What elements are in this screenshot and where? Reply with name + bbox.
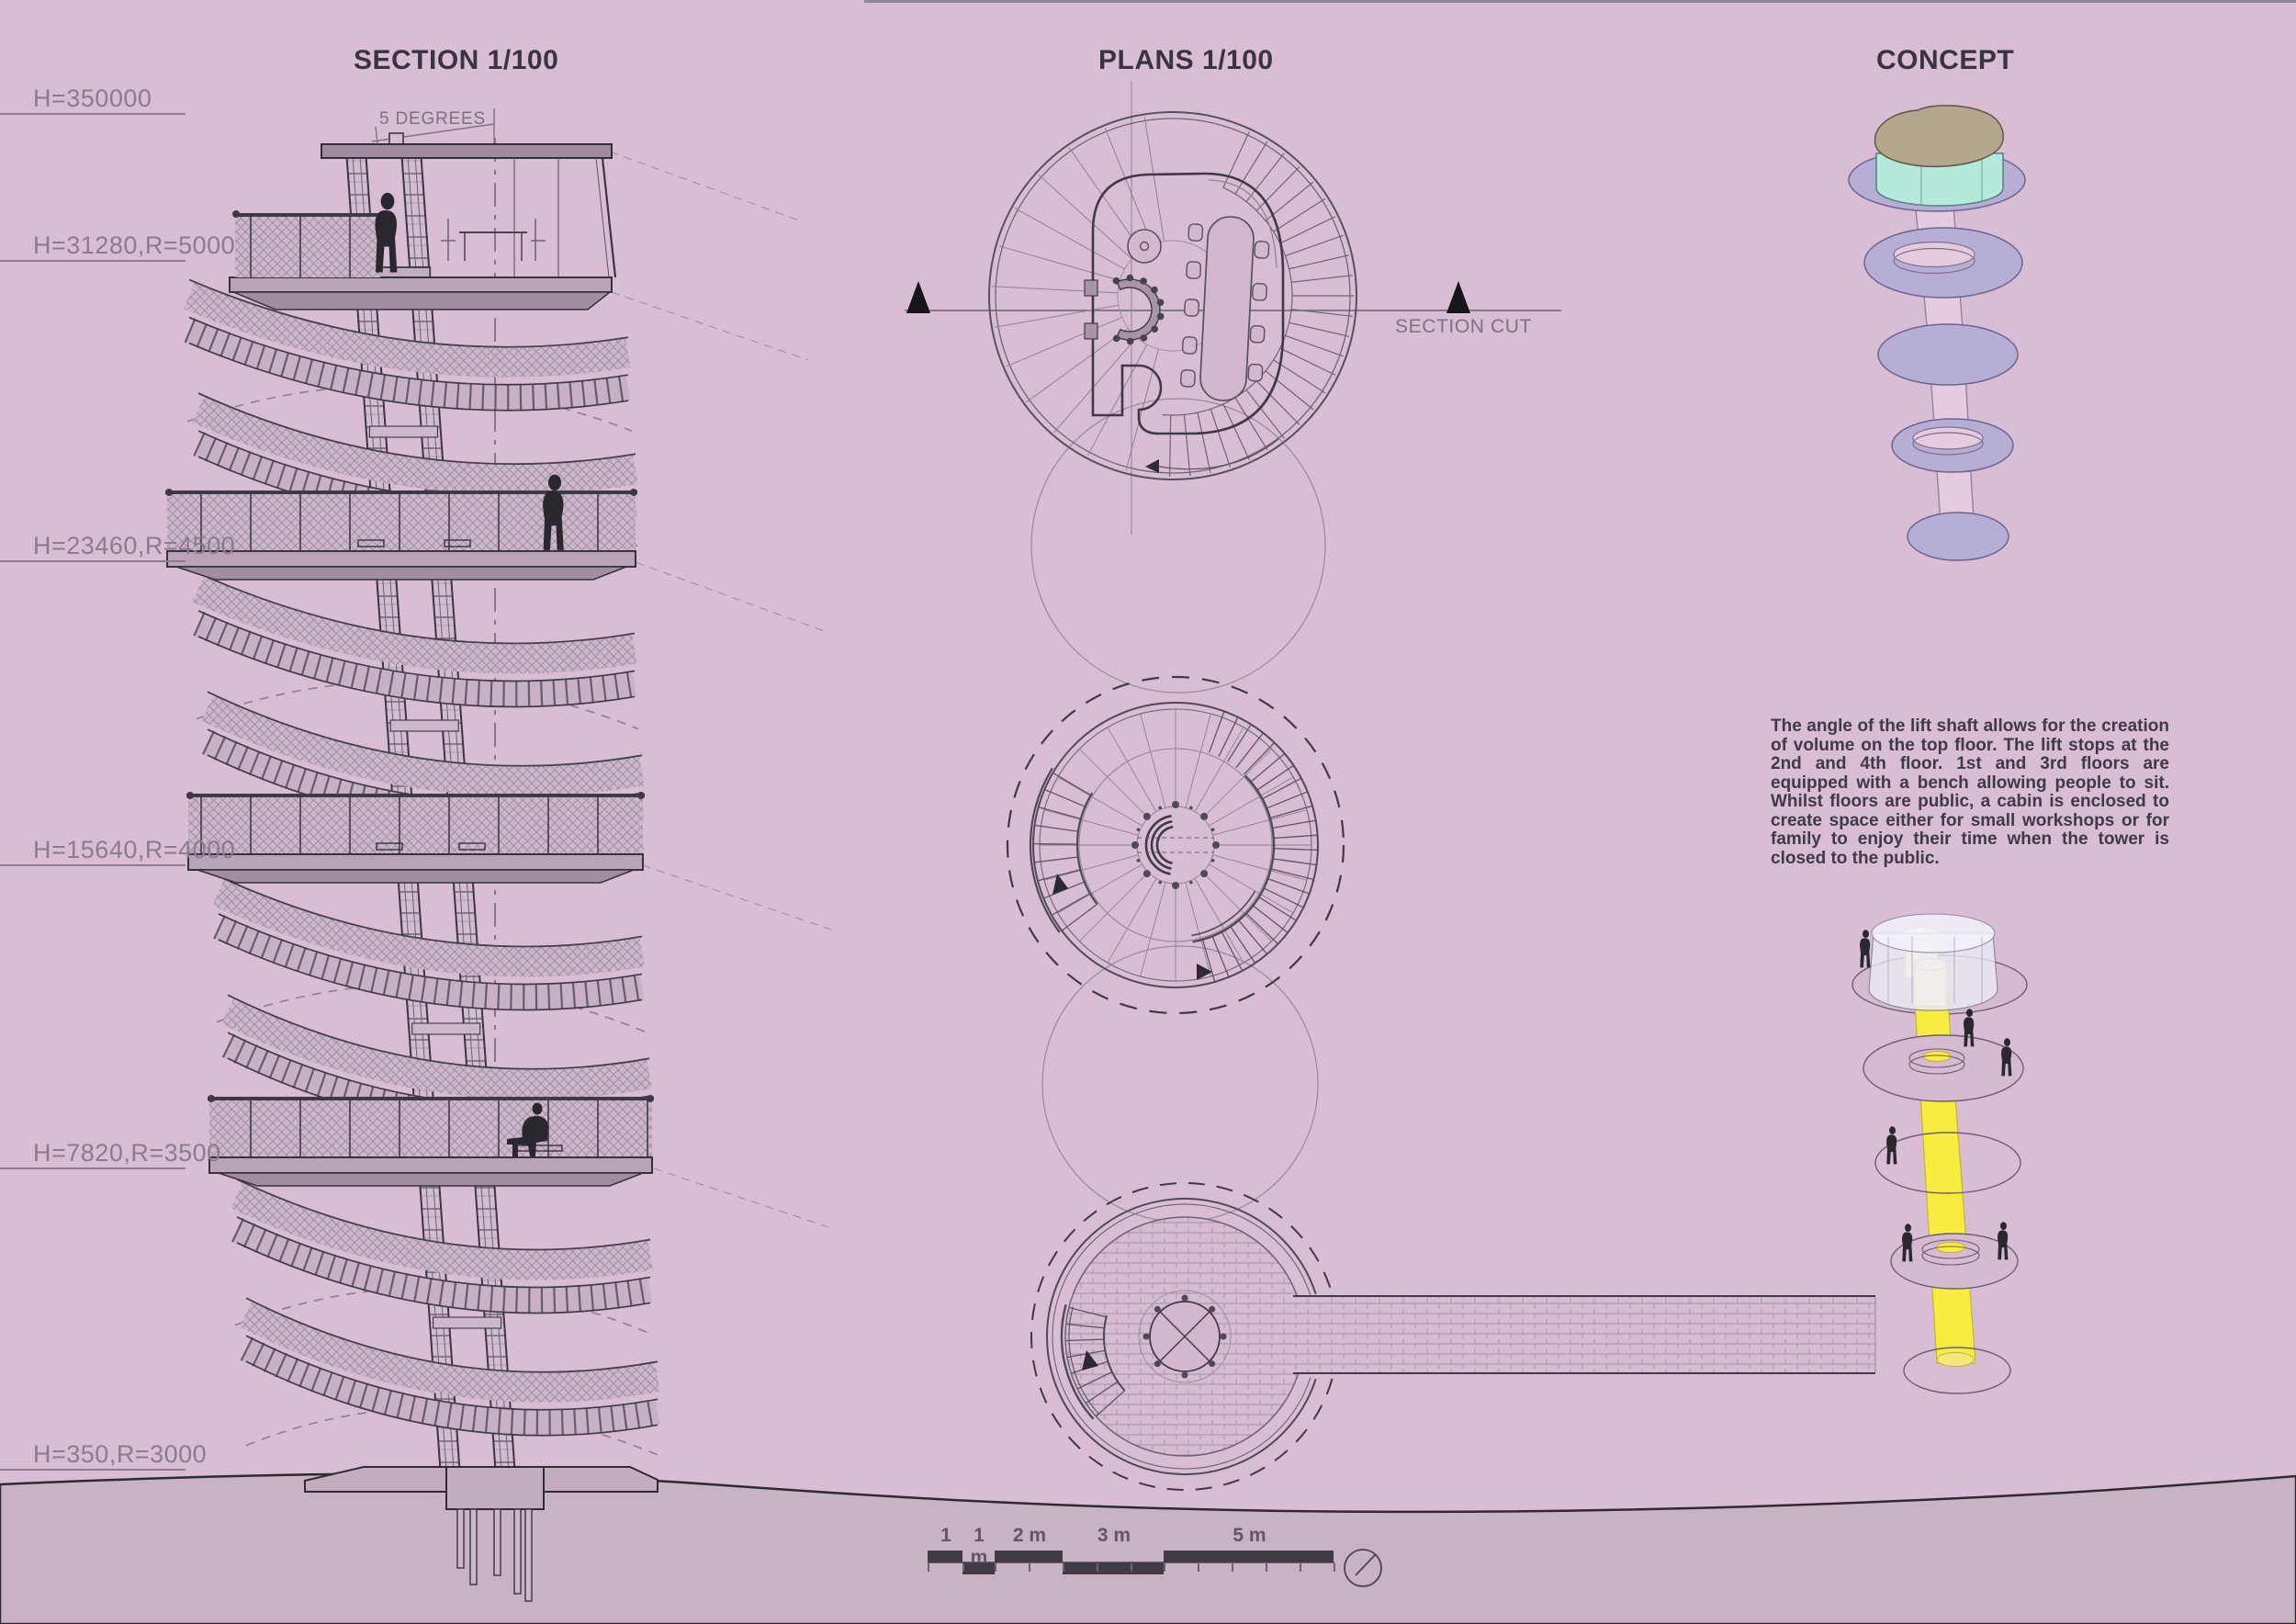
scale-segment	[962, 1562, 995, 1574]
section-cut-marker	[1446, 281, 1470, 313]
round-table-plan	[1128, 230, 1161, 263]
top-edge-strip	[864, 0, 2296, 3]
axon-floor-disc	[1863, 1035, 2023, 1101]
height-label: H=31280,R=5000	[0, 231, 186, 262]
paved-path	[1289, 1296, 1875, 1373]
cabin-wall	[602, 158, 615, 277]
scale-label: 3 m	[1064, 1525, 1165, 1547]
scale-tick	[1029, 1563, 1030, 1572]
cabin-roof	[321, 144, 612, 158]
platform-slab	[188, 854, 643, 870]
scale-tick	[1300, 1563, 1301, 1572]
height-label: H=350,R=3000	[0, 1439, 186, 1471]
plan-drawings	[905, 81, 1875, 1490]
platform-slab	[167, 551, 636, 567]
person-figure	[1886, 1126, 1896, 1164]
bench-plan	[1180, 215, 1270, 402]
axon-roof-blob	[1875, 106, 2004, 166]
person-figure	[1860, 930, 1870, 967]
scale-segment	[1164, 1551, 1334, 1562]
cabin-floor-slab	[230, 277, 612, 292]
ghost-floor-circle	[1031, 399, 1325, 693]
foundation-pile	[525, 1509, 532, 1601]
section-cut-marker	[906, 281, 930, 313]
scale-tick	[1097, 1563, 1098, 1572]
axon-floor-disc	[1908, 513, 2009, 560]
height-label: H=350000	[0, 84, 186, 115]
scale-label: 5 m	[1165, 1525, 1334, 1547]
scale-tick	[962, 1563, 964, 1572]
north-compass-icon	[1337, 1543, 1389, 1595]
scale-tick	[1063, 1563, 1064, 1572]
height-label: H=15640,R=4000	[0, 835, 186, 866]
foundation-block	[446, 1467, 544, 1509]
height-label: H=23460,R=4500	[0, 531, 186, 562]
scale-label: 2 m	[996, 1525, 1064, 1547]
scale-tick	[1164, 1563, 1165, 1572]
foundation-pile	[514, 1509, 521, 1594]
scale-tick	[1334, 1563, 1335, 1572]
angle-annotation: 5 DEGREES	[379, 109, 486, 130]
section-cut-annotation: SECTION CUT	[1395, 316, 1532, 338]
scale-tick	[1232, 1563, 1233, 1572]
scale-tick	[1131, 1563, 1132, 1572]
plans-title: PLANS 1/100	[1098, 45, 1274, 76]
scale-tick	[1266, 1563, 1267, 1572]
scale-segment	[928, 1551, 962, 1562]
scale-tick	[928, 1563, 929, 1572]
presentation-board: SECTION 1/100 PLANS 1/100 CONCEPT H=3500…	[0, 0, 2296, 1624]
foundation-pile	[470, 1509, 477, 1585]
scale-segment	[1063, 1562, 1164, 1574]
scale-segment	[995, 1551, 1063, 1562]
foundation-pile	[494, 1509, 501, 1575]
scale-tick	[1198, 1563, 1199, 1572]
concept-paragraph: The angle of the lift shaft allows for t…	[1771, 717, 2169, 868]
foundation-pile	[457, 1509, 464, 1568]
scale-bar: 1 m 1 m 2 m 3 m 5 m	[926, 1525, 1357, 1582]
person-figure	[375, 193, 397, 273]
scale-tick	[995, 1563, 996, 1572]
section-drawing	[165, 108, 834, 1601]
axon-floor-disc	[1878, 324, 2018, 385]
height-label: H=7820,R=3500	[0, 1138, 186, 1169]
platform-slab	[209, 1157, 652, 1173]
concept-title: CONCEPT	[1876, 45, 2014, 76]
section-title: SECTION 1/100	[354, 45, 558, 76]
